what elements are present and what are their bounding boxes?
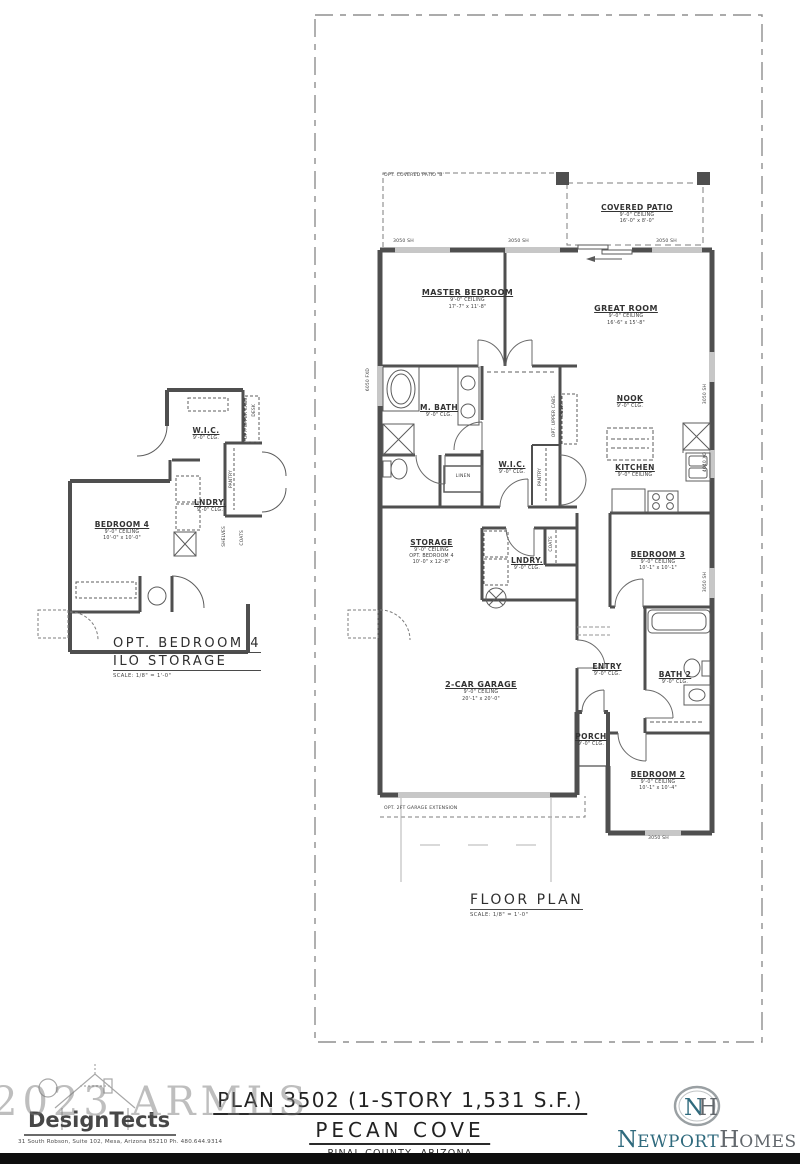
floorplan-sheet: { "sheet": { "floor_plan_title": "FLOOR …	[0, 0, 800, 1164]
opt-covered-patio-note: OPT. COVERED PATIO 'B'	[384, 173, 444, 178]
alt-pantry-label: PANTRY	[229, 470, 234, 488]
alt-opt-door-box	[38, 610, 68, 638]
bed2-door	[618, 733, 646, 761]
front-door	[582, 690, 604, 712]
alt-laundry-walls	[170, 460, 200, 481]
alt-opt-door-arc	[70, 612, 98, 640]
window-label-3050-top2: 3050 SH	[508, 239, 529, 244]
alt-wic-walls	[167, 390, 243, 426]
wall-bed2	[608, 766, 712, 833]
window-label-3050-top3: 3050 SH	[656, 239, 677, 244]
alt-opt-upper-cabs-label: OPT. UPPER CABS.	[244, 396, 249, 439]
sink2	[689, 689, 705, 701]
coats-label: COATS	[549, 536, 554, 552]
builder-ewport: EWPORT	[637, 1132, 719, 1152]
wall-left-garage	[380, 250, 577, 795]
window-label-6050-mbath: 6050 FXD	[366, 368, 371, 391]
desk-label: DESK	[560, 404, 565, 417]
pantry-doors	[560, 455, 586, 505]
alt-desk-label: DESK	[252, 404, 257, 417]
laundry-door	[506, 528, 534, 556]
window-label-3050-right2: 3050 SH	[703, 572, 708, 592]
window-label-4040-kitchen: 4040 XO	[703, 452, 708, 472]
builder-n: N	[617, 1127, 637, 1153]
alt-closet-shelf	[76, 582, 136, 598]
linen-label: LINEN	[444, 474, 482, 479]
wall-bed3	[610, 513, 712, 607]
window-great-right	[709, 352, 715, 382]
builder-name: N EWPORT H OMES	[617, 1127, 797, 1153]
desk-cabs	[562, 394, 577, 444]
alt-wic-door-arc	[137, 426, 167, 456]
wic-door	[500, 479, 528, 507]
opt-patio-dashed	[383, 173, 556, 247]
master-door-left	[478, 340, 504, 366]
garage-entry-door	[577, 640, 605, 668]
sliding-door	[578, 245, 632, 262]
toilet2-bowl	[684, 659, 700, 677]
linen-closet	[444, 466, 482, 492]
builder-monogram: N H	[675, 1087, 719, 1125]
island-lines	[611, 439, 649, 448]
hall-arch-dashed	[577, 627, 610, 635]
vanity2	[684, 685, 710, 705]
opt-garage-ext-note: OPT. 2FT GARAGE EXTENSION	[384, 806, 457, 811]
burner1	[653, 494, 660, 501]
shower-x	[383, 424, 414, 455]
alt-pantry-doors	[262, 452, 286, 512]
alt-bed4-walls	[70, 481, 248, 652]
monogram-h-letter: H	[698, 1095, 718, 1121]
msink1	[461, 376, 475, 390]
corner-pantry-x	[683, 423, 710, 450]
mbath-door	[454, 422, 482, 450]
mtoilet-tank	[383, 461, 391, 477]
main-plan-walls	[380, 172, 712, 833]
footer-community: PECAN COVE	[309, 1118, 490, 1145]
architect-underline	[24, 1134, 176, 1136]
alt-plan-details	[76, 396, 286, 608]
alt-plan-title: OPT. BEDROOM 4 ILO STORAGE SCALE: 1/8" =…	[113, 636, 261, 679]
window-patio-top	[652, 247, 702, 253]
master-door-right	[506, 340, 532, 366]
burner3	[653, 503, 660, 510]
window-bed3-right	[709, 568, 715, 598]
dryer	[484, 559, 508, 585]
garage-options	[348, 610, 585, 882]
alt-closet-walls	[70, 576, 172, 612]
fridge	[612, 489, 645, 512]
builder-omes: OMES	[739, 1132, 796, 1152]
alt-coats-label: COATS	[240, 530, 245, 546]
wall-porch	[577, 712, 608, 766]
toilet2-tank	[702, 661, 710, 676]
footer-black-bar	[0, 1153, 800, 1164]
pantry-label: PANTRY	[538, 468, 543, 486]
window-great-top	[505, 247, 560, 253]
patio-post-right	[697, 172, 710, 185]
builder-h: H	[719, 1127, 739, 1153]
bed3-door	[615, 579, 643, 607]
opt-upper-cabs-label: OPT. UPPER CABS.	[552, 394, 557, 437]
floor-plan-title: FLOOR PLAN SCALE: 1/8" = 1'-0"	[470, 892, 583, 918]
slider-arrow	[586, 256, 595, 262]
architect-address: 31 South Robson, Suite 102, Mesa, Arizon…	[18, 1139, 222, 1145]
alt-wh-x	[174, 532, 196, 556]
alt-dryer	[176, 504, 200, 530]
burner4	[667, 503, 674, 510]
range	[648, 491, 678, 512]
alt-washer	[176, 476, 200, 502]
mtub-inner	[391, 374, 411, 404]
opt-side-door-box	[348, 610, 378, 638]
covered-patio-dashed	[567, 183, 703, 245]
tub2-inner	[652, 613, 706, 630]
window-label-3050-right1: 3050 SH	[703, 384, 708, 404]
window-label-3050-bed2: 3050 SH	[648, 836, 669, 841]
alt-wic-shelf	[188, 398, 228, 411]
window-master-top	[395, 247, 450, 253]
alt-shelves-label: SHELVES	[222, 526, 227, 547]
wall-laundry	[482, 528, 577, 600]
mtoilet-bowl	[391, 459, 407, 479]
alt-plan-walls	[70, 390, 262, 652]
opt-side-door-arc	[380, 610, 410, 640]
garage-door-opening	[398, 792, 550, 798]
burner2	[667, 494, 674, 501]
washer	[484, 531, 508, 557]
alt-closet-fixture	[148, 587, 166, 605]
armls-watermark: 2023 ARMLS	[0, 1079, 310, 1125]
patio-post-left	[556, 172, 569, 185]
alt-closet-door-arc	[172, 576, 204, 608]
bath2-door	[645, 690, 673, 718]
msink2	[461, 404, 475, 418]
window-label-3050-top1: 3050 SH	[393, 239, 414, 244]
water-heater-x	[489, 591, 503, 605]
window-mbath-left	[377, 366, 383, 406]
island	[607, 428, 653, 460]
